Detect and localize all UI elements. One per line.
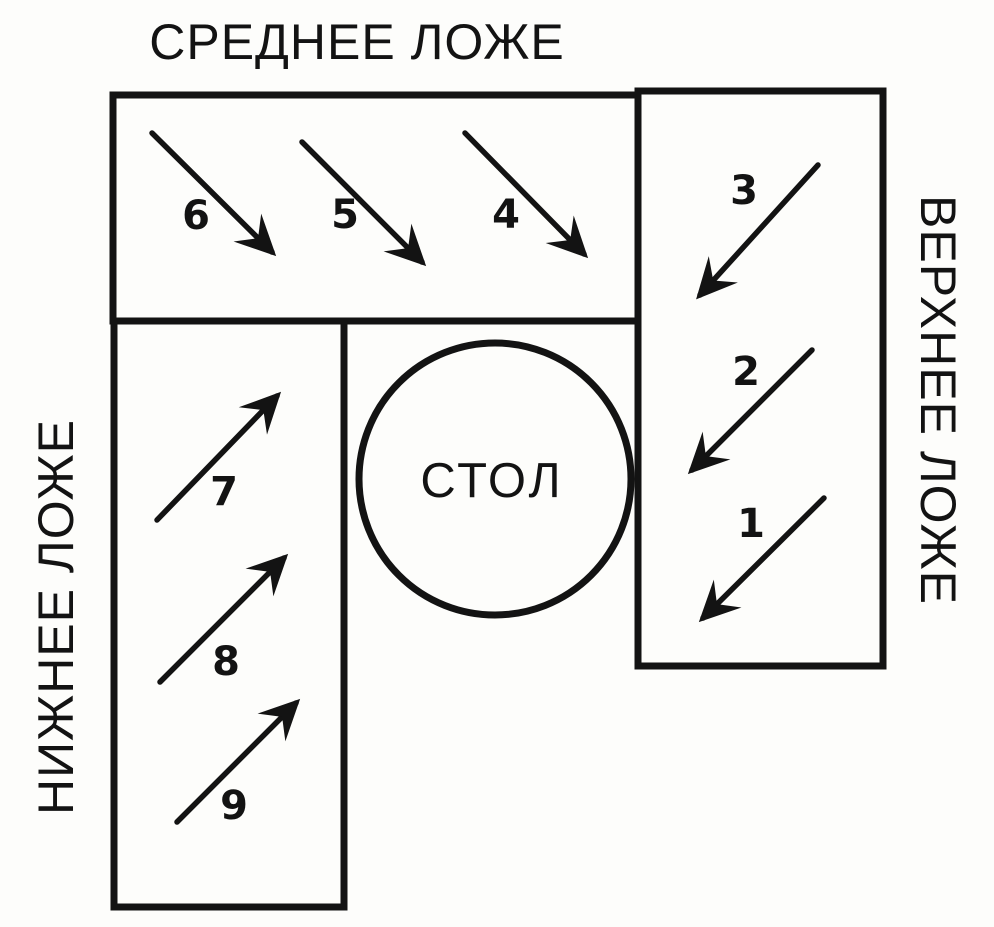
seat-arrow-4 [465,133,584,254]
lower-lodge-arrows: 7 8 9 [157,396,296,829]
lower-lodge-label: НИЖНЕЕ ЛОЖЕ [28,419,84,815]
upper-lodge-label: ВЕРХНЕЕ ЛОЖЕ [910,195,966,605]
seat-number-4: 4 [492,192,520,238]
seat-number-3: 3 [730,168,758,214]
seat-number-8: 8 [212,639,240,685]
upper-lodge-box [638,91,883,666]
lodge-seating-diagram: СТОЛ СРЕДНЕЕ ЛОЖЕ ВЕРХНЕЕ ЛОЖЕ НИЖНЕЕ ЛО… [0,0,994,927]
table-label: СТОЛ [420,454,563,508]
seat-arrow-6 [152,133,272,252]
middle-lodge-label: СРЕДНЕЕ ЛОЖЕ [149,14,565,70]
seat-number-6: 6 [182,193,210,239]
upper-lodge-arrows: 3 2 1 [692,165,824,618]
seat-number-9: 9 [220,783,248,829]
seat-number-7: 7 [210,469,238,515]
middle-lodge-arrows: 6 5 4 [152,133,584,262]
seat-number-2: 2 [732,349,760,395]
seat-arrow-3 [700,165,818,295]
seat-arrow-5 [302,142,422,262]
seat-number-5: 5 [331,192,359,238]
seat-number-1: 1 [737,501,765,547]
